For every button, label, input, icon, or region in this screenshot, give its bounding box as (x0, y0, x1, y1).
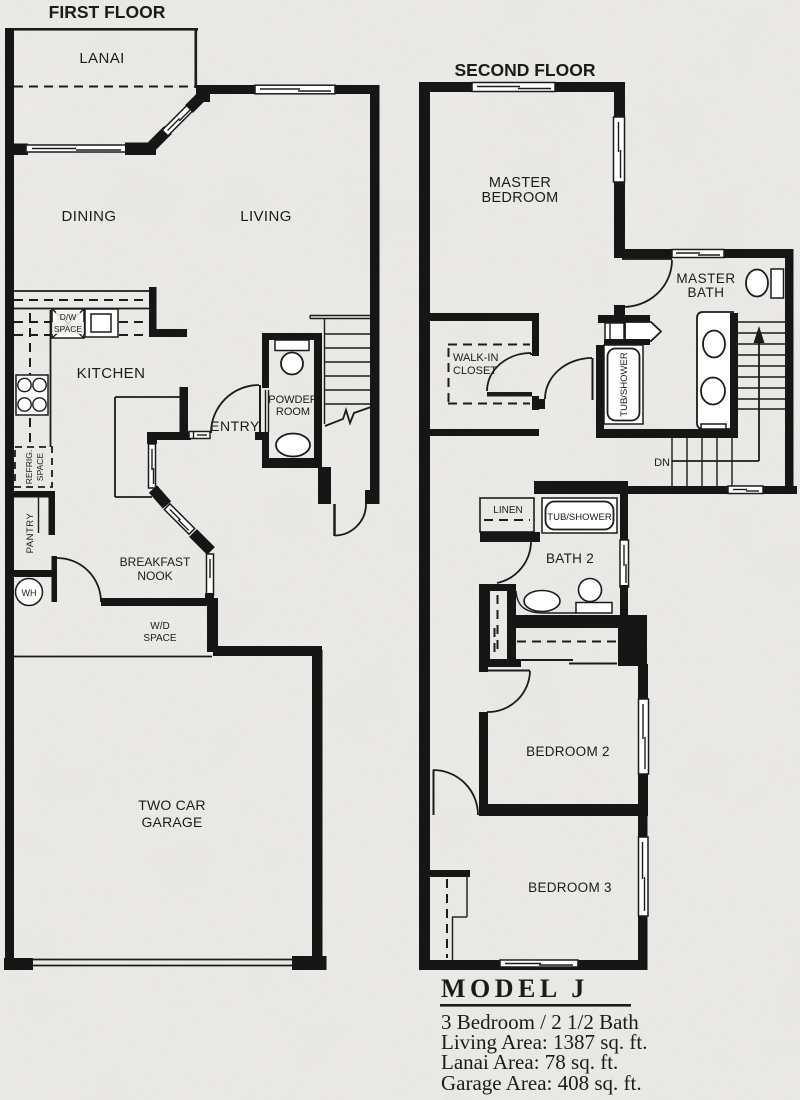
svg-text:BREAKFAST: BREAKFAST (120, 555, 191, 569)
svg-text:SPACE: SPACE (54, 324, 83, 334)
svg-text:TWO CAR: TWO CAR (138, 797, 206, 813)
svg-text:NOOK: NOOK (137, 569, 172, 583)
svg-text:PANTRY: PANTRY (25, 513, 36, 554)
svg-text:Garage Area: 408 sq. ft.: Garage Area: 408 sq. ft. (441, 1071, 642, 1095)
svg-text:TUB/SHOWER: TUB/SHOWER (619, 352, 630, 417)
svg-text:TUB/SHOWER: TUB/SHOWER (547, 512, 612, 523)
svg-text:CLOSET: CLOSET (453, 365, 497, 377)
svg-text:LINEN: LINEN (493, 505, 522, 516)
svg-text:FIRST FLOOR: FIRST FLOOR (49, 2, 166, 22)
svg-text:BEDROOM 2: BEDROOM 2 (526, 744, 610, 759)
svg-text:BATH 2: BATH 2 (546, 551, 594, 566)
svg-text:BATH: BATH (687, 285, 724, 300)
svg-text:SPACE: SPACE (35, 453, 45, 482)
svg-text:KITCHEN: KITCHEN (77, 365, 146, 382)
svg-text:LIVING: LIVING (240, 208, 292, 225)
svg-text:WH: WH (22, 588, 37, 598)
svg-text:BEDROOM: BEDROOM (481, 190, 558, 206)
svg-text:GARAGE: GARAGE (141, 814, 202, 830)
svg-text:BEDROOM 3: BEDROOM 3 (528, 880, 612, 895)
svg-text:REFRIG.: REFRIG. (24, 450, 34, 484)
svg-text:DN: DN (654, 457, 670, 469)
svg-text:DINING: DINING (62, 208, 117, 225)
svg-text:MODEL J: MODEL J (441, 974, 589, 1003)
svg-text:WALK-IN: WALK-IN (453, 352, 498, 364)
svg-text:ENTRY: ENTRY (210, 418, 260, 434)
svg-text:MASTER: MASTER (489, 175, 551, 191)
svg-text:LANAI: LANAI (79, 50, 124, 67)
svg-text:ROOM: ROOM (276, 406, 310, 418)
svg-text:SPACE: SPACE (143, 633, 176, 644)
svg-text:W/D: W/D (150, 621, 169, 632)
svg-text:MASTER: MASTER (676, 271, 735, 286)
svg-text:POWDER: POWDER (268, 394, 318, 406)
svg-text:D/W: D/W (60, 312, 77, 322)
svg-text:SECOND FLOOR: SECOND FLOOR (455, 60, 596, 80)
